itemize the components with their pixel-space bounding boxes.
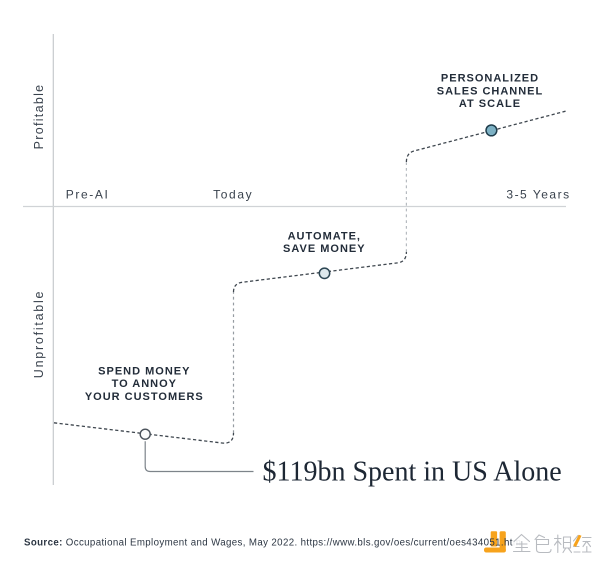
svg-text:AT SCALE: AT SCALE [459, 98, 521, 110]
svg-text:Profitable: Profitable [32, 84, 46, 150]
svg-text:TO ANNOY: TO ANNOY [112, 378, 177, 390]
svg-text:YOUR CUSTOMERS: YOUR CUSTOMERS [85, 391, 204, 403]
svg-text:Pre-AI: Pre-AI [66, 188, 110, 202]
svg-text:3-5 Years: 3-5 Years [506, 188, 570, 202]
svg-text:AUTOMATE,: AUTOMATE, [288, 231, 361, 243]
svg-text:$119bn Spent in US Alone: $119bn Spent in US Alone [263, 457, 562, 488]
svg-text:Unprofitable: Unprofitable [32, 290, 46, 378]
svg-text:SAVE MONEY: SAVE MONEY [283, 243, 366, 255]
svg-text:PERSONALIZED: PERSONALIZED [441, 73, 539, 85]
svg-text:Source: Occupational Employmen: Source: Occupational Employment and Wage… [24, 538, 521, 549]
svg-text:SPEND MONEY: SPEND MONEY [98, 365, 190, 377]
svg-text:Today: Today [213, 188, 253, 202]
svg-text:SALES CHANNEL: SALES CHANNEL [437, 85, 544, 97]
